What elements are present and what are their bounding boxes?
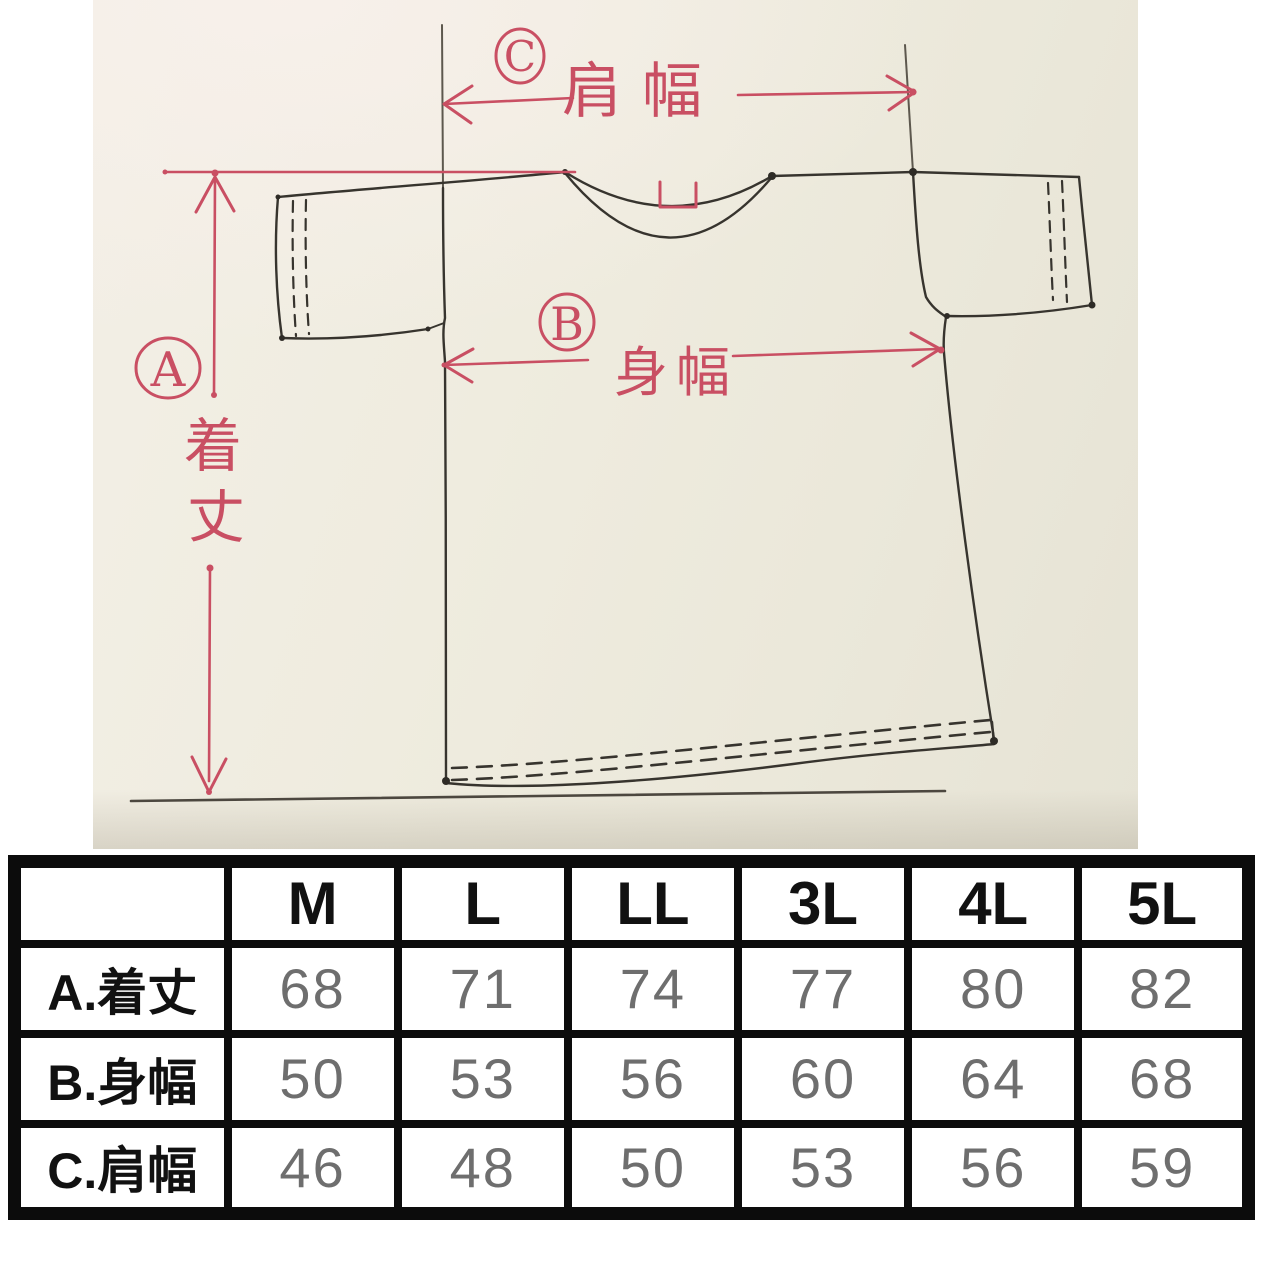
size-header-cell-l: L — [398, 862, 568, 944]
value-cell: 64 — [908, 1034, 1078, 1124]
length-arrow-upper-shaft — [214, 178, 215, 394]
value-cell: 48 — [398, 1124, 568, 1214]
value-cell: 53 — [738, 1124, 908, 1214]
size-chart-table: M L LL 3L 4L 5L A.着丈 68 71 74 77 80 82 B… — [8, 855, 1255, 1220]
table-row-body-width: B.身幅 50 53 56 60 64 68 — [15, 1034, 1249, 1124]
row-label-length: A.着丈 — [15, 944, 228, 1034]
circle-a-label: A — [150, 342, 187, 398]
measurement-annotations: A B C 肩幅 身幅 着 丈 — [136, 29, 945, 795]
tshirt-sketch: A B C 肩幅 身幅 着 丈 — [93, 0, 1138, 849]
body-width-label: 身幅 — [614, 341, 738, 404]
right-sleeve-cuff-edge — [1079, 177, 1092, 305]
tshirt-sketch-photo: A B C 肩幅 身幅 着 丈 — [93, 0, 1138, 849]
table-row-length: A.着丈 68 71 74 77 80 82 — [15, 944, 1249, 1034]
length-arrow-lower-shaft — [209, 568, 210, 781]
right-shoulder-line — [772, 172, 1079, 177]
right-sleeve-stitch-line — [1062, 181, 1067, 302]
body-right-seam — [913, 172, 994, 739]
value-cell: 74 — [568, 944, 738, 1034]
right-sleeve-stitch-line — [1048, 183, 1053, 300]
size-chart-graphic: A B C 肩幅 身幅 着 丈 M L LL 3L 4L 5L A. — [0, 0, 1280, 1280]
value-cell: 82 — [1078, 944, 1248, 1034]
value-cell: 53 — [398, 1034, 568, 1124]
value-cell: 68 — [228, 944, 398, 1034]
shoulder-width-label: 肩幅 — [562, 57, 722, 127]
ink-dots — [276, 168, 1096, 785]
left-construction-line — [442, 25, 443, 188]
row-label-body-width: B.身幅 — [15, 1034, 228, 1124]
value-cell: 60 — [738, 1034, 908, 1124]
bodywidth-arrow-left-shaft — [444, 360, 588, 365]
value-cell: 46 — [228, 1124, 398, 1214]
value-cell: 56 — [568, 1034, 738, 1124]
bodywidth-arrow-right-shaft — [733, 349, 938, 356]
shoulder-arrow-right-shaft — [738, 92, 913, 95]
circle-c-label: C — [504, 32, 536, 81]
red-ink-dots — [163, 89, 945, 796]
collar-label-mark — [660, 182, 696, 207]
left-sleeve-bottom-edge — [282, 329, 428, 339]
value-cell: 56 — [908, 1124, 1078, 1214]
size-header-cell-5l: 5L — [1078, 862, 1248, 944]
value-cell: 50 — [568, 1124, 738, 1214]
value-cell: 59 — [1078, 1124, 1248, 1214]
left-shoulder-line — [278, 172, 565, 197]
left-sleeve-stitch-line — [306, 200, 309, 334]
value-cell: 71 — [398, 944, 568, 1034]
body-left-seam — [443, 188, 446, 781]
value-cell: 80 — [908, 944, 1078, 1034]
left-sleeve-cuff-edge — [276, 197, 282, 338]
size-header-cell-4l: 4L — [908, 862, 1078, 944]
collar-inner-curve — [565, 172, 772, 206]
size-table-header-row: M L LL 3L 4L 5L — [15, 862, 1249, 944]
value-cell: 68 — [1078, 1034, 1248, 1124]
row-label-shoulder-width: C.肩幅 — [15, 1124, 228, 1214]
value-cell: 77 — [738, 944, 908, 1034]
table-row-shoulder-width: C.肩幅 46 48 50 53 56 59 — [15, 1124, 1249, 1214]
ground-baseline — [131, 791, 945, 801]
left-sleeve-stitch-line — [293, 201, 296, 336]
value-cell: 50 — [228, 1034, 398, 1124]
size-header-cell-ll: LL — [568, 862, 738, 944]
right-sleeve-bottom-edge — [947, 305, 1092, 316]
shoulder-arrow-left-shaft — [444, 98, 573, 104]
left-underarm-join — [428, 323, 444, 329]
size-header-cell-3l: 3L — [738, 862, 908, 944]
circle-b-label: B — [550, 297, 584, 351]
length-label-char-1: 着 — [184, 412, 242, 480]
hem-stitch-line — [452, 720, 990, 768]
right-construction-line — [905, 45, 913, 172]
shirt-outline — [131, 25, 1096, 801]
size-table-corner-cell — [15, 862, 228, 944]
length-label-char-2: 丈 — [187, 483, 245, 551]
size-header-cell-m: M — [228, 862, 398, 944]
